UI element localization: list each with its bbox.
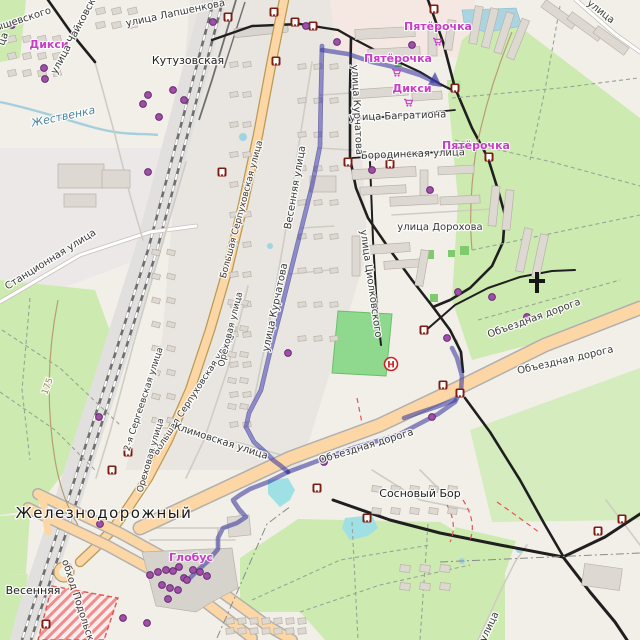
building [230,271,239,277]
bus-stop-icon[interactable] [439,381,448,390]
building [298,98,306,104]
building [298,64,306,70]
building [230,91,239,97]
building [330,132,338,138]
building [330,268,338,274]
building [314,336,322,342]
building [400,564,411,572]
building [64,194,96,207]
map-viewport[interactable]: Н ышевскогоцаДиксиулица Чайковскогоулица… [0,0,640,640]
building [438,165,474,175]
poi-marker[interactable] [427,187,434,194]
poi-marker[interactable] [42,76,49,83]
poi-marker[interactable] [303,23,310,30]
poi-marker[interactable] [155,569,162,576]
bus-stop-icon[interactable] [363,514,372,523]
building [314,234,322,240]
building [230,361,239,367]
poi-marker[interactable] [455,289,462,296]
building [400,582,411,590]
map-label: Дикси [392,82,431,95]
building [330,98,338,104]
building [352,236,360,276]
poi-marker[interactable] [197,569,204,576]
bus-stop-icon[interactable] [594,527,603,536]
bus-stop-icon[interactable] [313,484,322,493]
building [420,564,431,572]
poi-marker[interactable] [41,65,48,72]
building [243,271,252,277]
building [330,166,338,172]
bus-stop-icon[interactable] [618,515,627,524]
bus-stop-icon[interactable] [344,158,353,167]
poi-marker[interactable] [176,564,183,571]
bus-stop-icon[interactable] [224,13,233,22]
bus-stop-icon[interactable] [456,389,465,398]
building [243,331,252,337]
building [298,132,306,138]
building [298,618,307,625]
poi-marker[interactable] [444,335,451,342]
building [230,421,239,427]
poi-marker[interactable] [285,350,292,357]
map-label: Сосновый Бор [379,487,460,500]
map-label: Весенняя [6,584,61,597]
building [240,377,249,383]
map-label: улица Дорохова [397,222,482,233]
poi-marker[interactable] [170,87,177,94]
poi-marker[interactable] [156,114,163,121]
building [243,361,252,367]
poi-marker[interactable] [96,414,103,421]
map-label: Железнодорожный [16,504,193,522]
building [314,200,322,206]
poi-marker[interactable] [144,620,151,627]
poi-marker[interactable] [170,568,177,575]
building [240,325,249,331]
map-label: Пятёрочка [442,139,510,152]
building [429,507,439,514]
building [230,391,239,397]
poi-marker[interactable] [334,39,341,46]
building [314,268,322,274]
bus-stop-icon[interactable] [218,168,227,177]
building [330,64,338,70]
building [330,336,338,342]
building [240,351,249,357]
building [330,200,338,206]
building [262,618,271,625]
poi-marker[interactable] [165,596,172,603]
map-canvas[interactable]: Н ышевскогоцаДиксиулица Чайковскогоулица… [0,0,640,640]
building [330,234,338,240]
building [410,507,420,514]
poi-marker[interactable] [429,414,436,421]
bus-stop-icon[interactable] [270,8,279,17]
building [448,507,458,514]
building [274,628,283,635]
building [230,151,239,157]
bus-stop-icon[interactable] [272,57,281,66]
building [286,618,295,625]
poi-marker[interactable] [167,585,174,592]
building [298,268,306,274]
bus-stop-icon[interactable] [42,620,51,629]
building [226,628,235,635]
poi-marker[interactable] [489,294,496,301]
poi-marker[interactable] [204,573,211,580]
building [440,564,451,572]
building [243,121,252,127]
map-label: Кутузовская [152,54,224,67]
sports-pitch [332,311,392,376]
building [243,61,252,67]
building [250,618,259,625]
hospital-marker[interactable]: Н [385,358,398,371]
building [298,200,306,206]
building [243,151,252,157]
building [420,582,431,590]
bus-stop-icon[interactable] [451,84,460,93]
building [243,91,252,97]
poi-marker[interactable] [140,101,147,108]
building [298,302,306,308]
poi-marker[interactable] [147,572,154,579]
building [240,403,249,409]
building [391,507,401,514]
poi-marker[interactable] [145,92,152,99]
map-label: Пятёрочка [364,52,432,65]
building [230,181,239,187]
building [243,241,252,247]
building [330,302,338,308]
poi-marker[interactable] [145,169,152,176]
poi-marker[interactable] [210,19,217,26]
bus-stop-icon[interactable] [485,153,494,162]
building [298,628,307,635]
building [440,582,451,590]
building [230,121,239,127]
poi-marker[interactable] [120,615,127,622]
building [238,628,247,635]
building [228,377,237,383]
poi-marker[interactable] [369,167,376,174]
building [274,618,283,625]
poi-marker[interactable] [184,577,191,584]
bus-stop-icon[interactable] [291,18,300,27]
poi-marker[interactable] [409,42,416,49]
map-label: Пятёрочка [404,20,472,33]
building [102,170,130,188]
poi-marker[interactable] [159,582,166,589]
map-label: Глобус [169,551,213,564]
building [286,628,295,635]
poi-marker[interactable] [190,567,197,574]
building [250,628,259,635]
building [298,336,306,342]
building [243,391,252,397]
poi-marker[interactable] [163,567,170,574]
bus-stop-icon[interactable] [430,5,439,14]
building [230,61,239,67]
building [228,403,237,409]
building [372,507,382,514]
poi-marker[interactable] [181,97,188,104]
poi-marker[interactable] [175,587,182,594]
building [262,628,271,635]
building [440,195,480,205]
hospital-letter: Н [387,361,395,371]
building [58,164,104,188]
building [226,618,235,625]
building [314,302,322,308]
building [238,618,247,625]
bus-stop-icon[interactable] [108,466,117,475]
bus-stop-icon[interactable] [420,326,429,335]
